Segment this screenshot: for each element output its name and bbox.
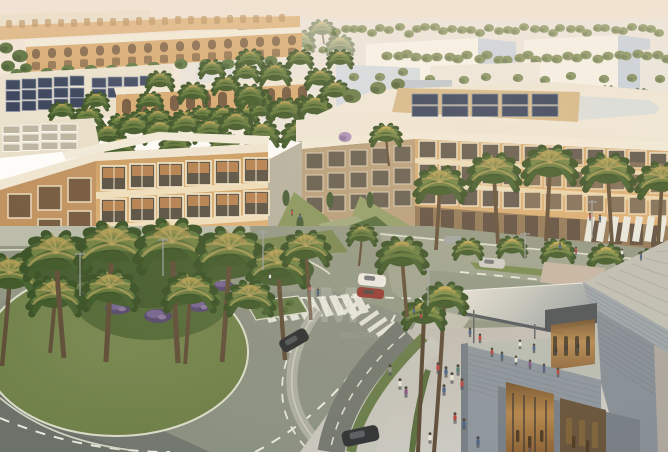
svg-text:aqarmap: aqarmap bbox=[340, 329, 383, 341]
svg-text:IM: IM bbox=[304, 277, 360, 333]
